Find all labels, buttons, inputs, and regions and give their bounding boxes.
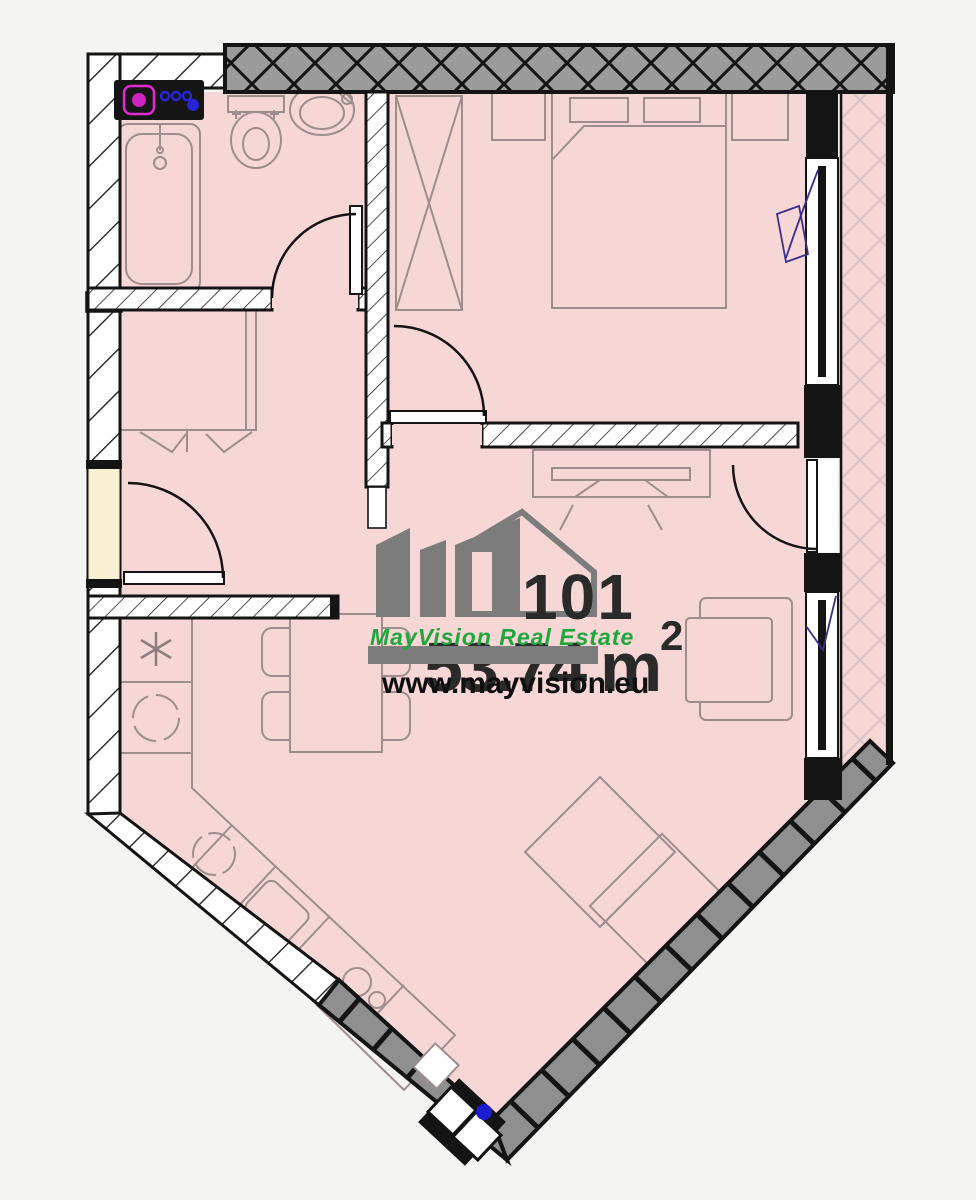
east-column-1 — [806, 92, 838, 158]
brand-name: MayVision Real Estate — [370, 624, 634, 650]
entrance-opening — [88, 468, 120, 580]
east-column-3 — [804, 553, 842, 592]
utility-point — [476, 1104, 492, 1120]
floor-plan: 53.74 m 2 101 MayVision Real Estate www.… — [0, 0, 976, 1200]
left-wall — [88, 54, 120, 814]
east-column-2 — [804, 385, 842, 458]
floorplan-image: 53.74 m 2 101 MayVision Real Estate www.… — [0, 0, 976, 1200]
dining-table — [290, 614, 382, 752]
bathroom-wall-south — [88, 288, 272, 310]
area-sup: 2 — [660, 612, 683, 659]
bedroom-living-wall-a — [382, 423, 392, 447]
east-column-4 — [804, 758, 842, 800]
unit-number: 101 — [522, 561, 635, 633]
double-bed — [552, 92, 726, 308]
hall-door-frame — [368, 487, 386, 528]
website: www.mayvision.eu — [381, 667, 649, 700]
balcony-floor — [842, 92, 886, 810]
top-wall — [225, 45, 893, 92]
bedroom-window — [806, 158, 838, 385]
bedroom-living-wall — [482, 423, 798, 447]
washing-machine — [114, 80, 204, 120]
hall-kitchen-wall — [88, 596, 338, 618]
balcony-outer-wall — [886, 45, 893, 765]
living-window — [806, 592, 838, 758]
